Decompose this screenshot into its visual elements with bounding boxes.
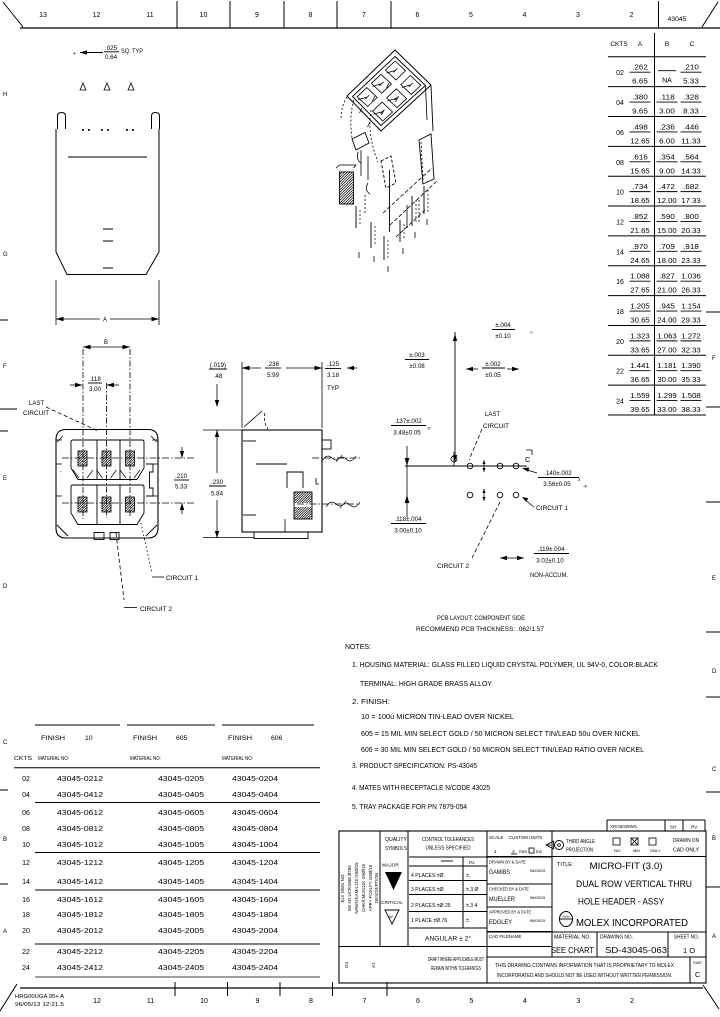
svg-text:3. PRODUCT SPECIFICATION: PS-4: 3. PRODUCT SPECIFICATION: PS-43045 — [352, 763, 477, 770]
svg-text:29.33: 29.33 — [681, 316, 701, 325]
svg-text:43045-1805: 43045-1805 — [158, 910, 204, 919]
svg-text:QUALITY: QUALITY — [385, 837, 407, 843]
svg-text:22: 22 — [616, 369, 624, 376]
svg-text:24.65: 24.65 — [630, 256, 650, 265]
svg-text:THIS DRAWING CONTAINS INFORMAT: THIS DRAWING CONTAINS INFORMATION THAT I… — [495, 963, 675, 969]
svg-text:E: E — [3, 476, 7, 482]
svg-text:3.18: 3.18 — [327, 372, 340, 379]
svg-text:RECOMMEND PCB THICKNESS: .062/: RECOMMEND PCB THICKNESS: .062/1.57 — [416, 626, 544, 633]
svg-text:3.00: 3.00 — [659, 107, 675, 116]
svg-text:2. FINISH:: 2. FINISH: — [352, 699, 390, 706]
svg-text:8: 8 — [309, 998, 313, 1005]
svg-text:1.299: 1.299 — [657, 391, 677, 400]
svg-text:A: A — [3, 929, 7, 935]
svg-text:C: C — [525, 455, 531, 464]
svg-text:NON-ACCUM.: NON-ACCUM. — [530, 572, 568, 579]
svg-text:32.33: 32.33 — [681, 345, 701, 354]
svg-text:UNLESS SPECIFIED: UNLESS SPECIFIED — [426, 846, 471, 852]
svg-text:43045-1005: 43045-1005 — [158, 840, 204, 849]
svg-text:6: 6 — [416, 12, 420, 19]
svg-text:APPROVED BY & DATE: APPROVED BY & DATE — [489, 910, 531, 915]
svg-text:24.00: 24.00 — [657, 316, 677, 325]
svg-text:20: 20 — [22, 928, 30, 935]
svg-text:06: 06 — [616, 130, 624, 137]
svg-text:1. HOUSING MATERIAL: GLASS FIL: 1. HOUSING MATERIAL: GLASS FILLED LIQUID… — [352, 662, 658, 669]
svg-text:.918: .918 — [683, 242, 699, 251]
svg-text:43045-1004: 43045-1004 — [232, 840, 278, 849]
svg-text:MICRO-FIT (3.0): MICRO-FIT (3.0) — [590, 861, 663, 872]
svg-text:605 = 15 MIL MIN SELECT GOLD /: 605 = 15 MIL MIN SELECT GOLD / 50 MICRON… — [361, 731, 640, 738]
svg-text:43045-0612: 43045-0612 — [57, 808, 103, 817]
svg-text:.118: .118 — [659, 93, 675, 102]
svg-text:DRAWING NO.: DRAWING NO. — [600, 935, 633, 941]
svg-text:43045-1405: 43045-1405 — [158, 877, 204, 886]
svg-text:INCORPORATED AND SHOULD NOT BE: INCORPORATED AND SHOULD NOT BE USED WITH… — [497, 973, 672, 979]
svg-text:DRAFT WHERE APPLICABLE MUST: DRAFT WHERE APPLICABLE MUST — [428, 957, 484, 963]
svg-text:.800: .800 — [683, 212, 699, 221]
svg-text:14.33: 14.33 — [681, 166, 701, 175]
svg-text:33.00: 33.00 — [657, 405, 677, 414]
svg-text:8.33: 8.33 — [683, 107, 699, 116]
svg-text:MATERIAL NO:: MATERIAL NO: — [38, 756, 69, 762]
svg-text:.119±.004: .119±.004 — [537, 546, 565, 553]
svg-text:.137±.002: .137±.002 — [394, 418, 422, 425]
svg-text:1 PLACE ±Ø.76: 1 PLACE ±Ø.76 — [411, 918, 447, 924]
svg-text:1.088: 1.088 — [630, 272, 650, 281]
svg-text:43045-0204: 43045-0204 — [232, 774, 278, 783]
svg-text:43045-2204: 43045-2204 — [232, 947, 278, 956]
svg-text:CUSTOM UNITS: CUSTOM UNITS — [509, 835, 542, 840]
svg-text:10: 10 — [200, 12, 208, 19]
svg-text:43045-0604: 43045-0604 — [232, 808, 278, 817]
svg-text:XR/43045WG: XR/43045WG — [610, 824, 638, 829]
svg-text:14: 14 — [616, 249, 624, 256]
svg-text:27.00: 27.00 — [657, 345, 677, 354]
svg-text:24: 24 — [616, 399, 624, 406]
svg-text:1.154: 1.154 — [681, 302, 701, 311]
svg-text:43045-1212: 43045-1212 — [57, 858, 103, 867]
svg-text:CIRCUIT 1: CIRCUIT 1 — [536, 505, 568, 512]
svg-text:43045-2005: 43045-2005 — [158, 926, 204, 935]
svg-text:5.99: 5.99 — [267, 372, 280, 379]
svg-text:9: 9 — [256, 998, 260, 1005]
svg-text:LAST: LAST — [485, 411, 500, 418]
svg-text:15.65: 15.65 — [630, 166, 650, 175]
svg-text:10: 10 — [22, 842, 30, 849]
svg-text:NA: NA — [662, 78, 672, 85]
svg-text:4. MATES WITH RECEPTACLE N/COD: 4. MATES WITH RECEPTACLE N/CODE 43025 — [352, 785, 490, 792]
svg-text:±.3 4: ±.3 4 — [466, 903, 477, 909]
svg-text:.616: .616 — [632, 152, 648, 161]
svg-text:SQ. TYP: SQ. TYP — [121, 49, 143, 55]
svg-text:4: 4 — [523, 12, 527, 19]
svg-text:3.56±0.05: 3.56±0.05 — [543, 481, 571, 488]
svg-text:TITLE:: TITLE: — [557, 862, 574, 868]
svg-text:3: 3 — [576, 12, 580, 19]
svg-text:±.: ±. — [466, 918, 470, 924]
svg-text:CIRCUIT 1: CIRCUIT 1 — [166, 575, 198, 582]
svg-text:11: 11 — [146, 12, 153, 19]
svg-text:ELV DWG NO:: ELV DWG NO: — [340, 874, 345, 903]
svg-text:5.84: 5.84 — [211, 491, 224, 498]
svg-text:.210: .210 — [683, 63, 699, 72]
svg-text:11: 11 — [147, 998, 154, 1005]
svg-text:ANGULAR ± 2°: ANGULAR ± 2° — [425, 937, 472, 943]
svg-text:NOTES:: NOTES: — [345, 644, 371, 651]
svg-text:5.33: 5.33 — [683, 77, 699, 86]
svg-text:96/05/13 12:21.5: 96/05/13 12:21.5 — [15, 1002, 64, 1008]
svg-text:4: 4 — [523, 998, 527, 1005]
svg-text:.354: .354 — [659, 152, 675, 161]
svg-text:5: 5 — [469, 12, 473, 19]
svg-text:43045-1205: 43045-1205 — [158, 858, 204, 867]
svg-text:.682: .682 — [683, 182, 699, 191]
svg-text:43045-2412: 43045-2412 — [57, 963, 103, 972]
svg-text:9: 9 — [255, 12, 259, 19]
svg-text:43045-1812: 43045-1812 — [57, 910, 103, 919]
svg-text:3: 3 — [577, 998, 581, 1005]
svg-text:1.323: 1.323 — [630, 331, 650, 340]
svg-text:33.65: 33.65 — [630, 345, 650, 354]
svg-text:±.3 Ø: ±.3 Ø — [466, 887, 478, 893]
svg-text:7: 7 — [363, 998, 367, 1005]
svg-text:APR+:FOXLFY G9Ø/15: APR+:FOXLFY G9Ø/15 — [368, 864, 373, 911]
svg-text:B: B — [3, 837, 7, 843]
svg-text:SIZE: SIZE — [693, 960, 702, 965]
svg-text:1.559: 1.559 — [630, 391, 650, 400]
svg-text:.446: .446 — [683, 122, 699, 131]
svg-text:1.036: 1.036 — [681, 272, 701, 281]
svg-text:PROJECTION: PROJECTION — [566, 848, 593, 854]
svg-text:±0.10: ±0.10 — [495, 333, 511, 340]
svg-text:13: 13 — [39, 12, 47, 19]
svg-text:.118±.004: .118±.004 — [394, 516, 422, 523]
svg-text:12: 12 — [93, 998, 101, 1005]
svg-text:E: E — [712, 576, 716, 582]
svg-text:CIRCUIT 2: CIRCUIT 2 — [437, 563, 469, 570]
svg-text:HRG00UGA 95+ A: HRG00UGA 95+ A — [15, 994, 64, 1000]
svg-text:.970: .970 — [632, 242, 648, 251]
svg-text:9.00: 9.00 — [659, 166, 675, 175]
svg-text:.48: .48 — [214, 373, 223, 380]
svg-text:.140±.002: .140±.002 — [544, 470, 572, 477]
svg-text:FINISH: FINISH — [228, 735, 252, 742]
svg-text:TERMINAL: HIGH GRADE BRASS ALL: TERMINAL: HIGH GRADE BRASS ALLOY — [360, 681, 492, 688]
svg-text:12.00: 12.00 — [657, 196, 677, 205]
svg-text:EE AD.UCR1898 Ø786: EE AD.UCR1898 Ø786 — [347, 865, 352, 911]
svg-text:CAD FILENAME: CAD FILENAME — [489, 934, 522, 939]
svg-text:D: D — [3, 584, 8, 590]
svg-text:.734: .734 — [632, 182, 648, 191]
svg-text:CONTROL TOLERANCES: CONTROL TOLERANCES — [422, 837, 474, 843]
svg-text:CHECKED BY & DATE: CHECKED BY & DATE — [489, 887, 529, 892]
svg-text:F: F — [712, 356, 716, 362]
svg-text:20.33: 20.33 — [681, 226, 701, 235]
svg-text:43045-0804: 43045-0804 — [232, 824, 278, 833]
svg-text:.230: .230 — [211, 479, 224, 486]
svg-text:EDGLEY: EDGLEY — [489, 919, 513, 926]
svg-text:.498: .498 — [632, 122, 648, 131]
svg-text:10: 10 — [200, 998, 208, 1005]
svg-text:SYMBOLS: SYMBOLS — [385, 846, 407, 852]
svg-text:30.65: 30.65 — [630, 316, 650, 325]
svg-text:D: D — [712, 669, 717, 675]
svg-text:1.390: 1.390 — [681, 361, 701, 370]
svg-text:18.00: 18.00 — [657, 256, 677, 265]
svg-text:6: 6 — [416, 998, 420, 1005]
svg-text:08: 08 — [616, 160, 624, 167]
svg-text:B: B — [712, 836, 716, 842]
svg-text:20: 20 — [616, 339, 624, 346]
svg-text:±0.05: ±0.05 — [485, 372, 501, 379]
svg-text:21.65: 21.65 — [630, 226, 650, 235]
svg-text:SD-43045-063: SD-43045-063 — [605, 945, 667, 955]
svg-text:2: 2 — [630, 12, 634, 19]
svg-text:MAJOR: MAJOR — [382, 863, 399, 869]
svg-text:12: 12 — [22, 860, 30, 867]
svg-text:MUELLER: MUELLER — [489, 896, 515, 903]
svg-text:LAST: LAST — [29, 400, 44, 407]
svg-text:43045-1412: 43045-1412 — [57, 877, 103, 886]
svg-text:.564: .564 — [683, 152, 699, 161]
svg-text:16: 16 — [616, 279, 624, 286]
svg-text:CIRCUIT: CIRCUIT — [483, 423, 509, 430]
svg-text:.125: .125 — [327, 361, 340, 368]
svg-text:IN.: IN. — [469, 860, 475, 866]
svg-text:SCALE: SCALE — [489, 835, 503, 840]
svg-text:7: 7 — [362, 12, 366, 19]
svg-text:MOLEX INCORPORATED: MOLEX INCORPORATED — [576, 917, 688, 929]
svg-text:0.64: 0.64 — [105, 54, 118, 61]
svg-text:PCB LAYOUT: COMPONENT SIDE: PCB LAYOUT: COMPONENT SIDE — [437, 615, 526, 622]
svg-text:27.65: 27.65 — [630, 286, 650, 295]
svg-text:mm: mm — [519, 850, 527, 855]
svg-text:CRITICAL: CRITICAL — [381, 900, 403, 906]
svg-text:3.00: 3.00 — [89, 386, 102, 393]
svg-text:±.002: ±.002 — [485, 361, 501, 368]
svg-text:.236: .236 — [659, 122, 675, 131]
svg-text:3.00±0.10: 3.00±0.10 — [394, 528, 422, 535]
svg-text:THIRD ANGLE: THIRD ANGLE — [566, 839, 596, 845]
svg-text:02: 02 — [616, 70, 624, 77]
svg-text:NAWN:KAMIL116 G9Ø/15: NAWN:KAMIL116 G9Ø/15 — [354, 862, 359, 914]
svg-text:DRAWN ON: DRAWN ON — [673, 838, 699, 844]
svg-text:606 = 30 MIL MIN SELECT GOLD /: 606 = 30 MIL MIN SELECT GOLD / 50 MICRON… — [361, 747, 644, 754]
svg-text:1.181: 1.181 — [657, 361, 677, 370]
svg-text:HOLE HEADER - ASSY: HOLE HEADER - ASSY — [578, 897, 665, 908]
svg-text:35.33: 35.33 — [681, 375, 701, 384]
svg-text:CHKR:MUI111K G9Ø/15: CHKR:MUI111K G9Ø/15 — [361, 863, 366, 911]
svg-text:CKTS: CKTS — [610, 41, 628, 48]
svg-text:04: 04 — [616, 100, 624, 107]
svg-text:36.65: 36.65 — [630, 375, 650, 384]
svg-text:.590: .590 — [659, 212, 675, 221]
svg-text:17.33: 17.33 — [681, 196, 701, 205]
svg-text:43045-0405: 43045-0405 — [158, 790, 204, 799]
svg-text:30.00: 30.00 — [657, 375, 677, 384]
svg-text:C: C — [3, 740, 8, 746]
svg-text:.328: .328 — [683, 93, 699, 102]
svg-text:A: A — [103, 318, 107, 324]
svg-text:.827: .827 — [659, 272, 675, 281]
svg-text:1.441: 1.441 — [630, 361, 650, 370]
svg-text:21.00: 21.00 — [657, 286, 677, 295]
svg-text:MATERIAL NO:: MATERIAL NO: — [222, 756, 253, 762]
svg-text:43045-1204: 43045-1204 — [232, 858, 278, 867]
svg-text:NO-: NO- — [614, 848, 622, 853]
svg-text:43045-2404: 43045-2404 — [232, 963, 278, 972]
svg-text:24: 24 — [22, 965, 30, 972]
svg-text:43045-2205: 43045-2205 — [158, 947, 204, 956]
svg-text:(.019): (.019) — [210, 362, 226, 369]
svg-text:CIRCUIT 2: CIRCUIT 2 — [140, 606, 172, 613]
svg-text:CAD ONLY: CAD ONLY — [673, 848, 700, 854]
svg-text:1 O: 1 O — [683, 946, 695, 955]
svg-text:±.: ±. — [466, 873, 470, 879]
svg-text:43045-0205: 43045-0205 — [158, 774, 204, 783]
svg-text:96/05/15: 96/05/15 — [530, 868, 545, 873]
svg-text:SH: SH — [670, 825, 676, 830]
svg-text:C: C — [690, 41, 695, 48]
svg-text:43045-0212: 43045-0212 — [57, 774, 103, 783]
svg-text:14: 14 — [22, 879, 30, 886]
svg-text:10: 10 — [616, 190, 624, 197]
svg-text:18.65: 18.65 — [630, 196, 650, 205]
svg-text:RV: RV — [691, 825, 698, 830]
svg-text:2: 2 — [630, 998, 634, 1005]
svg-text:2 PLACES ±Ø.25: 2 PLACES ±Ø.25 — [411, 903, 451, 909]
svg-text:43045-2212: 43045-2212 — [57, 947, 103, 956]
svg-text:1: 1 — [494, 849, 497, 855]
svg-text:3.48±0.05: 3.48±0.05 — [393, 430, 421, 437]
svg-text:8: 8 — [309, 12, 313, 19]
svg-text:±.003: ±.003 — [409, 352, 425, 359]
svg-text:08: 08 — [22, 826, 30, 833]
svg-text:.852: .852 — [632, 212, 648, 221]
svg-text:1.063: 1.063 — [657, 331, 677, 340]
svg-text:B: B — [665, 41, 669, 48]
svg-text:-F: -F — [583, 484, 587, 489]
svg-text:16: 16 — [22, 897, 30, 904]
svg-text:B: B — [104, 340, 108, 346]
svg-text:22: 22 — [22, 949, 30, 956]
svg-text:C: C — [712, 767, 717, 773]
svg-text:A1: A1 — [371, 962, 376, 968]
svg-text:43045-0805: 43045-0805 — [158, 824, 204, 833]
svg-text:43045-0404: 43045-0404 — [232, 790, 278, 799]
svg-text:FINISH: FINISH — [41, 735, 65, 742]
svg-text:43045-1605: 43045-1605 — [158, 895, 204, 904]
svg-text:11.33: 11.33 — [681, 136, 701, 145]
svg-text:43045-1404: 43045-1404 — [232, 877, 278, 886]
svg-text:9.65: 9.65 — [632, 107, 648, 116]
svg-text:96/05/15: 96/05/15 — [530, 895, 545, 900]
svg-text:molex: molex — [562, 915, 571, 919]
svg-text:.118: .118 — [89, 376, 101, 383]
svg-text:DRAWN BY & DATE: DRAWN BY & DATE — [489, 860, 526, 865]
svg-text:39.65: 39.65 — [630, 405, 650, 414]
svg-text:A: A — [638, 41, 643, 48]
svg-text:6.65: 6.65 — [632, 77, 648, 86]
svg-text:DESCRIPTION: DESCRIPTION — [374, 873, 379, 903]
svg-text:FINISH: FINISH — [133, 735, 157, 742]
svg-text:02: 02 — [22, 776, 30, 783]
svg-text:3.02±0.10: 3.02±0.10 — [536, 558, 564, 565]
svg-text:1.272: 1.272 — [681, 331, 701, 340]
svg-text:26.33: 26.33 — [681, 286, 701, 295]
svg-text:inc: inc — [536, 849, 543, 855]
svg-text:±0.08: ±0.08 — [409, 363, 425, 370]
svg-text:1.205: 1.205 — [630, 302, 650, 311]
svg-text:43045-0412: 43045-0412 — [57, 790, 103, 799]
svg-text:43045: 43045 — [668, 16, 687, 23]
svg-text:12: 12 — [93, 12, 101, 19]
svg-text:3 PLACES ±Ø.: 3 PLACES ±Ø. — [411, 887, 445, 893]
svg-text:06: 06 — [22, 810, 30, 817]
svg-text:43045-2004: 43045-2004 — [232, 926, 278, 935]
svg-text:-F: -F — [427, 426, 431, 431]
svg-text:.262: .262 — [632, 63, 648, 72]
svg-text:D4: D4 — [344, 962, 349, 968]
svg-text:CIRCUIT: CIRCUIT — [23, 410, 49, 417]
svg-text:MATERIAL NO:: MATERIAL NO: — [130, 756, 161, 762]
svg-text:606: 606 — [271, 735, 283, 742]
svg-text:43045-2405: 43045-2405 — [158, 963, 204, 972]
svg-text:G: G — [3, 252, 8, 258]
svg-text:10: 10 — [85, 735, 93, 742]
svg-text:.380: .380 — [632, 93, 648, 102]
svg-text:04: 04 — [22, 792, 30, 799]
svg-text:43045-1612: 43045-1612 — [57, 895, 103, 904]
svg-text:+: + — [73, 51, 76, 57]
svg-text:MM: MM — [633, 848, 640, 853]
svg-text:>: > — [530, 330, 533, 335]
svg-text:43045-1012: 43045-1012 — [57, 840, 103, 849]
svg-text:.945: .945 — [659, 302, 675, 311]
svg-text:.025: .025 — [105, 45, 118, 52]
svg-text:GAMIBS: GAMIBS — [489, 869, 511, 876]
svg-text:MATERIAL NO.: MATERIAL NO. — [554, 935, 591, 941]
svg-text:.236: .236 — [267, 361, 280, 368]
svg-text:.472: .472 — [659, 182, 675, 191]
svg-text:43045-0605: 43045-0605 — [158, 808, 204, 817]
svg-text:43045-2012: 43045-2012 — [57, 926, 103, 935]
svg-text:5.33: 5.33 — [175, 484, 188, 491]
svg-text:.709: .709 — [659, 242, 675, 251]
svg-text:18: 18 — [616, 309, 624, 316]
svg-text:DUAL ROW VERTICAL THRU: DUAL ROW VERTICAL THRU — [576, 879, 692, 890]
svg-text:C: C — [695, 972, 700, 979]
svg-text:43045-1804: 43045-1804 — [232, 910, 278, 919]
svg-text:ONLY: ONLY — [650, 848, 661, 853]
svg-text:5. TRAY PACKAGE FOR PN 7879-05: 5. TRAY PACKAGE FOR PN 7879-054 — [352, 804, 467, 811]
svg-text:H: H — [3, 92, 7, 98]
svg-text:15.00: 15.00 — [657, 226, 677, 235]
svg-text:23.33: 23.33 — [681, 256, 701, 265]
svg-text:5: 5 — [470, 998, 474, 1005]
svg-text:.210: .210 — [175, 473, 188, 480]
svg-text:TYP: TYP — [327, 385, 339, 392]
svg-text:REMAIN WITHIN TOLERANCES: REMAIN WITHIN TOLERANCES — [431, 966, 481, 972]
svg-text:F: F — [3, 364, 7, 370]
svg-text:12.65: 12.65 — [630, 136, 650, 145]
svg-text:6.00: 6.00 — [659, 136, 675, 145]
svg-text:4 PLACES ±Ø.: 4 PLACES ±Ø. — [411, 873, 445, 879]
svg-text:1.508: 1.508 — [681, 391, 701, 400]
svg-text:CKTS: CKTS — [14, 756, 32, 762]
svg-text:43045-1604: 43045-1604 — [232, 895, 278, 904]
svg-text:10 = 100u MICRON TIN-LEAD OVER: 10 = 100u MICRON TIN-LEAD OVER NICKEL — [361, 714, 514, 721]
